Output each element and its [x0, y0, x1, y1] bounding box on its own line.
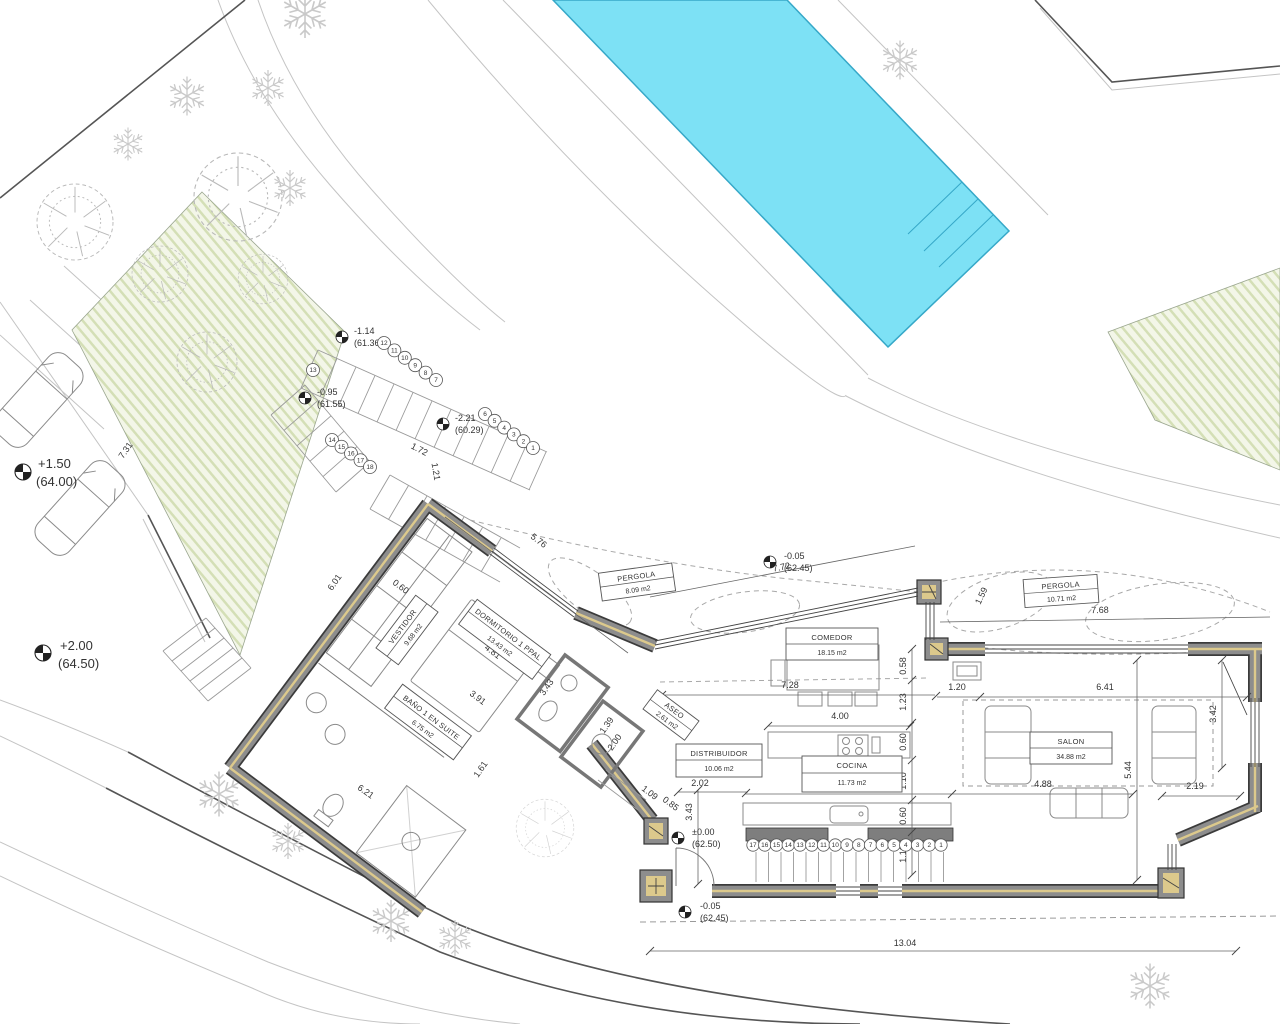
dim-0-60b: 0.60: [898, 733, 908, 751]
svg-text:2: 2: [927, 842, 931, 849]
dim-1-23: 1.23: [898, 693, 908, 711]
level-datum: (62.45): [700, 913, 729, 923]
svg-text:4: 4: [904, 842, 908, 849]
svg-text:5: 5: [892, 842, 896, 849]
garden-hatched-east: [1108, 268, 1280, 470]
svg-text:9: 9: [413, 362, 417, 369]
fern-icon: [112, 128, 145, 161]
room-label-pergola-east: PERGOLA 10.71 m2: [1023, 574, 1099, 607]
stair-run-terrace: 1716151413121110987654321: [747, 839, 947, 851]
svg-text:6: 6: [483, 411, 487, 418]
svg-text:16: 16: [347, 451, 355, 458]
benchmark-icon: [672, 832, 684, 844]
svg-text:COMEDOR: COMEDOR: [811, 633, 853, 642]
level-value: -0.95: [317, 387, 338, 397]
benchmark-icon: [679, 906, 691, 918]
svg-text:14: 14: [328, 437, 336, 444]
svg-text:17: 17: [357, 457, 365, 464]
svg-text:4: 4: [502, 425, 506, 432]
tree-icon: [516, 799, 574, 857]
dim-0-60: 0.60: [391, 577, 411, 596]
svg-text:6: 6: [880, 842, 884, 849]
terrace-steps: [756, 852, 944, 882]
svg-text:11.73 m2: 11.73 m2: [838, 780, 867, 787]
benchmark-icon: [15, 464, 31, 480]
level-value: +2.00: [60, 638, 93, 653]
stair-run-upper: 121110987: [378, 337, 443, 387]
plot-boundary-ne: [1035, 0, 1280, 82]
svg-text:12: 12: [808, 842, 816, 849]
svg-text:8: 8: [857, 842, 861, 849]
svg-text:7: 7: [869, 842, 873, 849]
svg-text:1: 1: [531, 445, 535, 452]
fern-icon: [250, 70, 286, 106]
dim-1-20: 1.20: [948, 682, 966, 692]
fern-icon: [281, 0, 329, 38]
plot-boundary-nw: [0, 0, 245, 198]
level-value: -2.21: [455, 413, 476, 423]
dim-1-59: 1.59: [973, 586, 989, 606]
benchmark-icon: [35, 645, 51, 661]
dim-6-21: 6.21: [356, 782, 376, 800]
svg-text:18: 18: [366, 464, 374, 471]
dim-2-00: 2.00: [605, 732, 623, 752]
car-outline: [30, 455, 131, 560]
room-label-dormitorio: DORMITORIO 1 PPAL 13.43 m2: [459, 599, 551, 679]
svg-text:5: 5: [493, 418, 497, 425]
fern-icon: [437, 920, 473, 956]
room-label-cocina: COCINA 11.73 m2: [802, 756, 902, 792]
svg-text:15: 15: [338, 444, 346, 451]
level-datum: (61.55): [317, 399, 346, 409]
dim-5-44: 5.44: [1123, 761, 1133, 779]
benchmark-icon: [437, 418, 449, 430]
fern-icon: [881, 41, 920, 80]
fern-icon: [1128, 964, 1173, 1009]
kitchen-counter: [743, 803, 951, 825]
dim-0-85: 0.85: [661, 794, 681, 813]
dim-3-42: 3.42: [1208, 705, 1218, 723]
dim-5-76: 5.76: [529, 531, 549, 550]
level-value: -0.05: [784, 551, 805, 561]
room-label-vestidor: VESTIDOR 9.68 m2: [376, 595, 438, 665]
garden-hatched-west: [72, 192, 345, 655]
kitchen-island: [768, 732, 910, 758]
fern-icon: [272, 170, 308, 206]
tree-icon: [37, 184, 113, 260]
svg-text:15: 15: [773, 842, 781, 849]
dim-1-39: 1.39: [597, 715, 615, 735]
room-label-aseo: ASEO 2.61 m2: [643, 690, 699, 740]
wc-sink: [558, 672, 580, 694]
dim-7-68: 7.68: [1091, 605, 1109, 615]
svg-text:7: 7: [434, 377, 438, 384]
dim-6-01: 6.01: [325, 572, 343, 592]
dim-4-00: 4.00: [831, 711, 849, 721]
dim-3-91: 3.91: [468, 688, 488, 707]
svg-text:14: 14: [785, 842, 793, 849]
room-label-salon: SALON 34.88 m2: [1030, 732, 1112, 764]
stair-step-13: 13: [307, 364, 320, 377]
svg-text:18.15 m2: 18.15 m2: [817, 650, 846, 657]
svg-text:10: 10: [401, 355, 409, 362]
benchmark-icon: [764, 556, 776, 568]
swimming-pool: [553, 0, 1009, 347]
svg-text:9: 9: [845, 842, 849, 849]
svg-text:10: 10: [832, 842, 840, 849]
stair-run-mid: 654321: [479, 408, 540, 455]
garden-areas: [72, 192, 1280, 655]
svg-text:16: 16: [761, 842, 769, 849]
level-datum: (64.50): [58, 656, 99, 671]
level-datum: (60.29): [455, 425, 484, 435]
car-outline: [0, 347, 88, 452]
room-label-pergola-west: PERGOLA 8.09 m2: [598, 563, 675, 601]
svg-text:3: 3: [916, 842, 920, 849]
fern-icon: [168, 77, 207, 116]
dim-13-04: 13.04: [894, 938, 917, 948]
benchmark-icon: [336, 331, 348, 343]
floor-plan-canvas: 5.76 7.72 7.68 0.60 4.81 3.91 3.43 1.61 …: [0, 0, 1280, 1024]
svg-text:13: 13: [796, 842, 804, 849]
dim-0-58: 0.58: [898, 657, 908, 675]
dim-1-61: 1.61: [471, 759, 489, 779]
dim-6-41: 6.41: [1096, 682, 1114, 692]
svg-text:13: 13: [309, 367, 317, 374]
level-value: +1.50: [38, 456, 71, 471]
dim-0-60c: 0.60: [898, 807, 908, 825]
level-datum: (62.45): [784, 563, 813, 573]
dim-1-21: 1.21: [430, 462, 443, 481]
svg-text:COCINA: COCINA: [837, 761, 868, 770]
svg-text:DISTRIBUIDOR: DISTRIBUIDOR: [690, 749, 748, 758]
site-plan-page: 5.76 7.72 7.68 0.60 4.81 3.91 3.43 1.61 …: [0, 0, 1280, 1024]
svg-text:11: 11: [820, 842, 827, 849]
level-datum: (64.00): [36, 474, 77, 489]
svg-text:2: 2: [522, 438, 526, 445]
entrance-door-swing: [676, 848, 714, 886]
trees: [37, 153, 574, 857]
svg-text:17: 17: [749, 842, 757, 849]
svg-text:1: 1: [939, 842, 943, 849]
dim-2-02: 2.02: [691, 778, 709, 788]
level-value: -1.14: [354, 326, 375, 336]
level-value: ±0.00: [692, 827, 714, 837]
dim-3-43b: 3.43: [684, 803, 694, 821]
dim-4-88: 4.88: [1034, 779, 1052, 789]
svg-text:8: 8: [424, 370, 428, 377]
benchmark-icon: [299, 392, 311, 404]
dim-2-19: 2.19: [1186, 781, 1204, 791]
room-label-distribuidor: DISTRIBUIDOR 10.06 m2: [676, 744, 762, 777]
svg-text:34.88 m2: 34.88 m2: [1056, 754, 1085, 761]
wc-toilet: [535, 697, 561, 724]
dim-3-43: 3.43: [537, 677, 555, 697]
svg-text:3: 3: [512, 432, 516, 439]
level-datum: (62.50): [692, 839, 721, 849]
svg-text:12: 12: [380, 340, 388, 347]
room-label-comedor: COMEDOR 18.15 m2: [786, 628, 878, 660]
svg-text:11: 11: [391, 348, 398, 355]
dim-7-28: 7.28: [781, 680, 799, 690]
level-value: -0.05: [700, 901, 721, 911]
svg-text:10.06 m2: 10.06 m2: [704, 766, 733, 773]
svg-text:SALON: SALON: [1058, 737, 1085, 746]
